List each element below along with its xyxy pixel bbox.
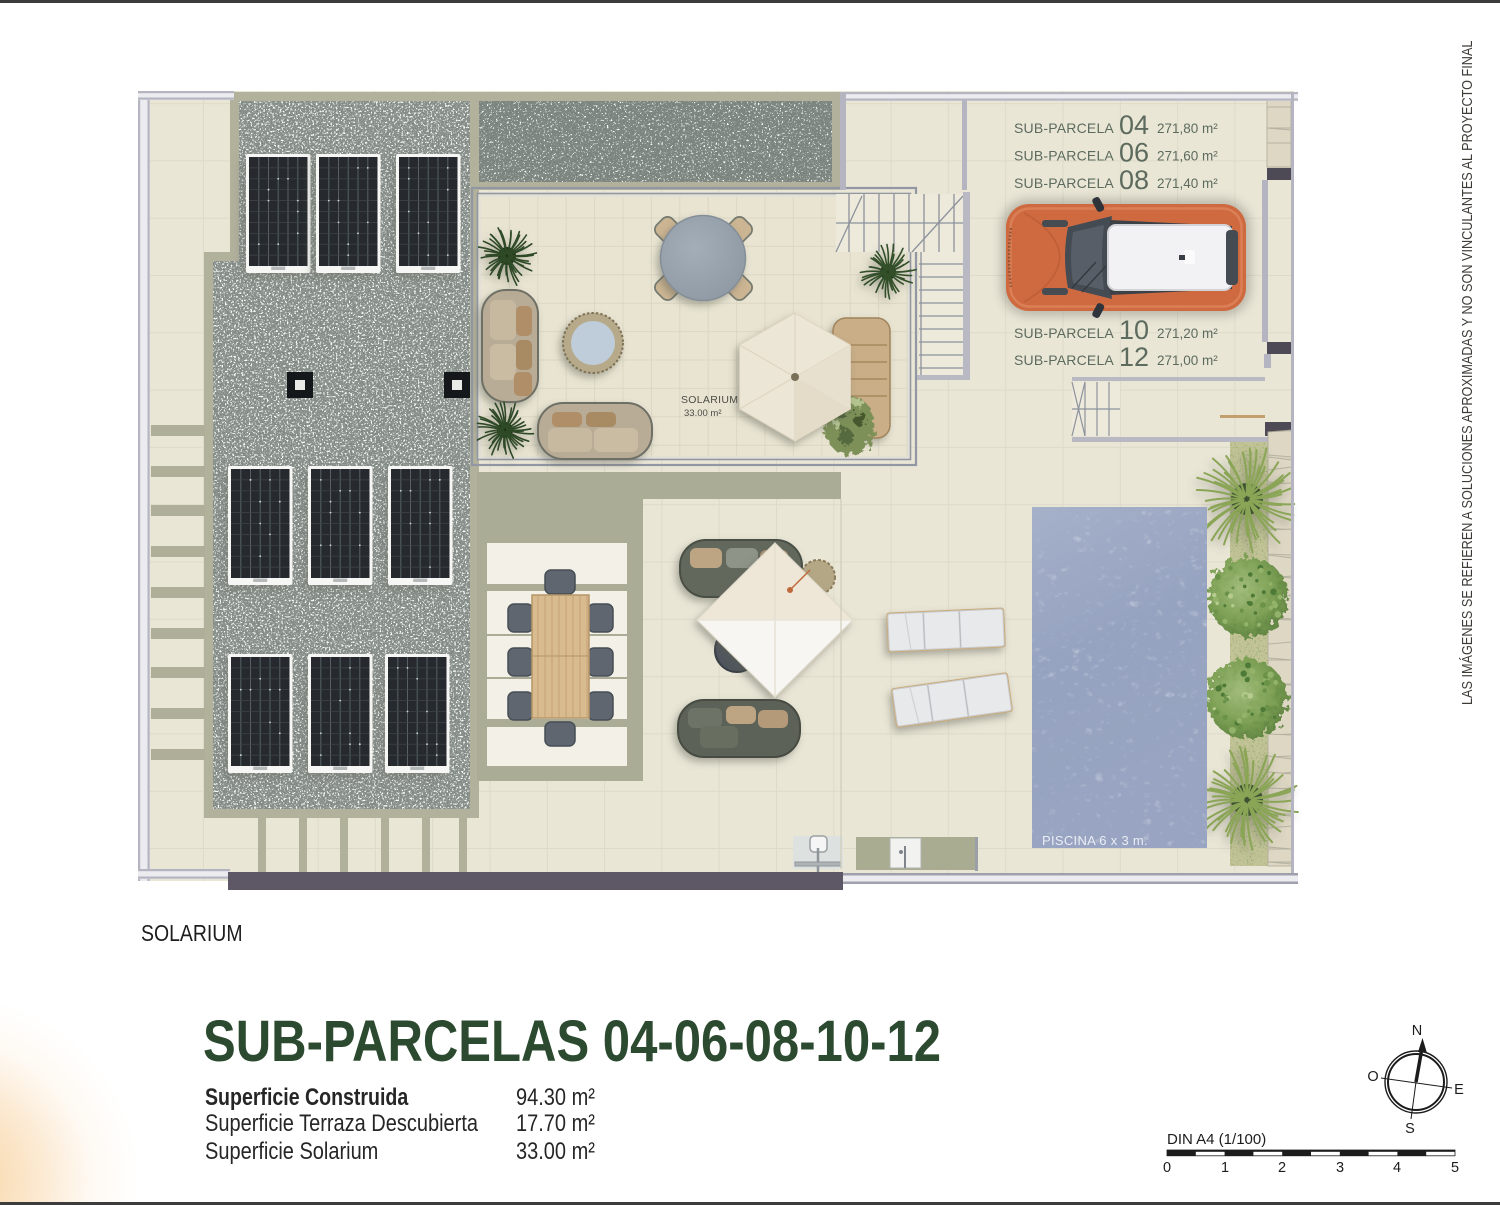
svg-text:08: 08 <box>1119 165 1149 195</box>
svg-text:SUB-PARCELA: SUB-PARCELA <box>1014 325 1114 341</box>
svg-text:271,00 m²: 271,00 m² <box>1157 353 1218 368</box>
svg-text:4: 4 <box>1393 1160 1401 1176</box>
svg-text:E: E <box>1454 1082 1464 1098</box>
svg-text:33.00 m²: 33.00 m² <box>684 408 722 419</box>
svg-text:SUB-PARCELA: SUB-PARCELA <box>1014 120 1114 136</box>
svg-text:271,60 m²: 271,60 m² <box>1157 149 1218 164</box>
svg-text:SUB-PARCELA: SUB-PARCELA <box>1014 352 1114 368</box>
svg-text:10: 10 <box>1119 315 1149 345</box>
svg-text:SUB-PARCELA: SUB-PARCELA <box>1014 175 1114 191</box>
svg-text:12: 12 <box>1119 342 1149 372</box>
svg-text:5: 5 <box>1451 1160 1459 1176</box>
svg-text:04: 04 <box>1119 110 1149 140</box>
svg-text:271,20 m²: 271,20 m² <box>1157 326 1218 341</box>
svg-text:1: 1 <box>1221 1160 1229 1176</box>
svg-text:S: S <box>1405 1121 1415 1137</box>
svg-text:3: 3 <box>1336 1160 1344 1176</box>
svg-text:2: 2 <box>1278 1160 1286 1176</box>
svg-text:0: 0 <box>1163 1160 1171 1176</box>
svg-text:DIN A4 (1/100): DIN A4 (1/100) <box>1167 1131 1266 1148</box>
svg-text:271,40 m²: 271,40 m² <box>1157 176 1218 191</box>
svg-text:O: O <box>1367 1069 1378 1085</box>
svg-text:SOLARIUM: SOLARIUM <box>681 394 738 406</box>
svg-text:271,80 m²: 271,80 m² <box>1157 121 1218 136</box>
svg-text:SUB-PARCELA: SUB-PARCELA <box>1014 148 1114 164</box>
svg-text:PISCINA 6 x 3 m.: PISCINA 6 x 3 m. <box>1042 833 1148 848</box>
svg-text:06: 06 <box>1119 138 1149 168</box>
svg-text:N: N <box>1412 1023 1422 1039</box>
